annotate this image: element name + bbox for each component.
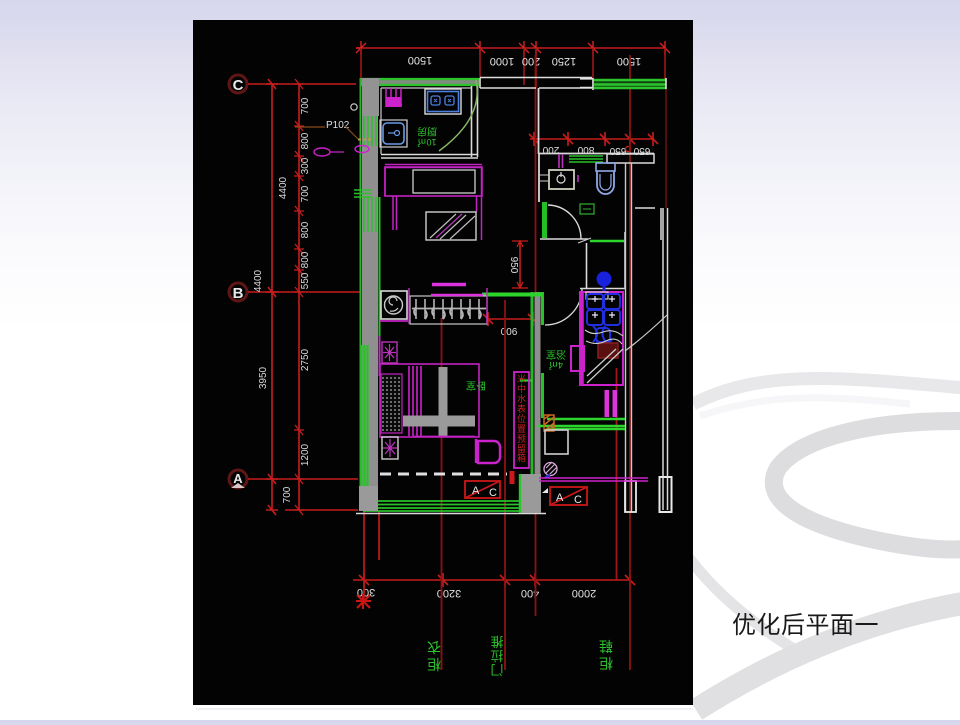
svg-text:C: C: [233, 77, 244, 94]
svg-text:2750: 2750: [300, 348, 311, 371]
svg-text:A: A: [472, 485, 480, 497]
svg-text:3950: 3950: [258, 366, 269, 389]
svg-text:衣: 衣: [427, 639, 441, 655]
svg-text:C: C: [574, 494, 582, 506]
svg-text:卧室: 卧室: [466, 379, 486, 392]
svg-text:4㎡: 4㎡: [549, 360, 563, 370]
svg-text:400: 400: [521, 587, 539, 599]
svg-text:B: B: [233, 285, 244, 302]
svg-text:A: A: [556, 492, 564, 504]
svg-text:4400: 4400: [253, 269, 264, 292]
svg-text:门: 门: [490, 662, 503, 677]
svg-text:900: 900: [500, 325, 517, 336]
svg-text:柜: 柜: [599, 655, 613, 671]
svg-text:拉: 拉: [490, 648, 503, 663]
svg-text:P102: P102: [326, 120, 350, 131]
svg-text:浴室: 浴室: [546, 348, 566, 361]
svg-text:1500: 1500: [408, 54, 432, 66]
svg-text:200: 200: [522, 55, 540, 67]
svg-text:预: 预: [517, 434, 526, 444]
svg-text:置: 置: [517, 424, 526, 434]
svg-text:700: 700: [282, 486, 293, 503]
svg-text:950: 950: [508, 257, 519, 274]
svg-text:10㎡: 10㎡: [417, 137, 436, 147]
svg-text:700: 700: [300, 185, 311, 202]
svg-text:800: 800: [300, 251, 311, 268]
svg-text:800: 800: [300, 132, 311, 149]
svg-text:3200: 3200: [437, 587, 461, 599]
svg-text:厨房: 厨房: [417, 125, 437, 138]
svg-text:水: 水: [517, 393, 526, 404]
svg-text:C: C: [489, 487, 497, 499]
svg-text:1200: 1200: [300, 443, 311, 466]
svg-text:鞋: 鞋: [599, 638, 613, 654]
svg-text:米: 米: [517, 373, 526, 384]
svg-text:中: 中: [517, 383, 526, 394]
svg-text:1250: 1250: [552, 55, 576, 67]
svg-text:柜: 柜: [427, 656, 441, 672]
svg-text:800: 800: [300, 221, 311, 238]
svg-text:位: 位: [517, 413, 526, 424]
svg-text:1000: 1000: [490, 55, 514, 67]
svg-text:300: 300: [300, 157, 311, 174]
svg-text:表: 表: [517, 403, 526, 414]
svg-text:700: 700: [300, 97, 311, 114]
svg-text:4400: 4400: [278, 176, 289, 199]
svg-text:550: 550: [300, 272, 311, 289]
svg-text:2000: 2000: [572, 587, 596, 599]
svg-text:推: 推: [490, 634, 503, 649]
svg-text:1500: 1500: [617, 55, 641, 67]
svg-text:箱: 箱: [517, 452, 526, 463]
